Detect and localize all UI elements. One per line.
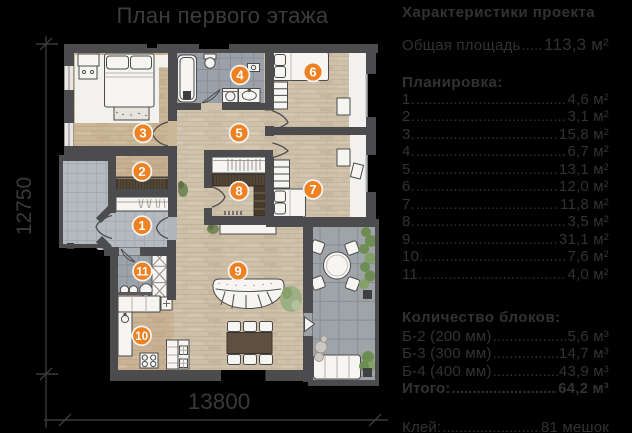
svg-text:11: 11 [136,266,149,278]
svg-text:1: 1 [138,218,145,233]
svg-text:3: 3 [139,126,146,141]
svg-text:7: 7 [309,182,316,197]
svg-text:5: 5 [235,126,242,141]
svg-text:4: 4 [236,68,244,83]
svg-text:12750: 12750 [13,177,36,235]
svg-text:2: 2 [138,164,145,179]
svg-text:8: 8 [235,184,242,199]
svg-text:10: 10 [135,331,148,343]
svg-text:13800: 13800 [188,389,251,414]
svg-text:6: 6 [309,65,316,80]
svg-text:9: 9 [234,264,241,279]
